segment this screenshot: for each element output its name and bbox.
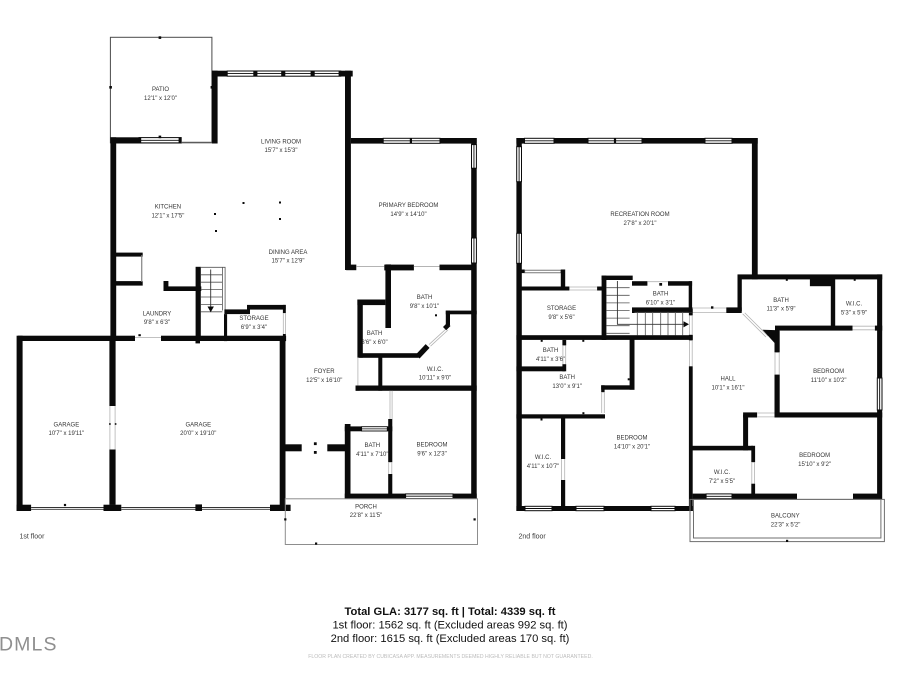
svg-text:BATH: BATH bbox=[653, 292, 669, 298]
svg-text:W.I.C.: W.I.C. bbox=[427, 367, 444, 373]
svg-text:13'0" x 9'1": 13'0" x 9'1" bbox=[552, 384, 582, 390]
svg-text:4'11" x 3'6": 4'11" x 3'6" bbox=[536, 357, 565, 363]
svg-text:PRIMARY BEDROOM: PRIMARY BEDROOM bbox=[379, 203, 439, 209]
svg-text:STORAGE: STORAGE bbox=[547, 306, 576, 312]
svg-text:BEDROOM: BEDROOM bbox=[416, 443, 447, 449]
svg-text:STORAGE: STORAGE bbox=[239, 316, 268, 322]
svg-text:9'8" x 5'6": 9'8" x 5'6" bbox=[548, 315, 574, 321]
svg-text:BATH: BATH bbox=[559, 375, 575, 381]
svg-text:11'10" x 10'2": 11'10" x 10'2" bbox=[811, 378, 847, 384]
svg-text:PATIO: PATIO bbox=[152, 87, 169, 93]
svg-text:10'7" x 19'11": 10'7" x 19'11" bbox=[48, 431, 84, 437]
svg-text:FOYER: FOYER bbox=[314, 369, 335, 375]
svg-text:22'8" x 11'5": 22'8" x 11'5" bbox=[350, 513, 382, 519]
svg-text:Total GLA: 3177 sq. ft | Total: Total GLA: 3177 sq. ft | Total: 4339 sq.… bbox=[345, 606, 556, 618]
svg-text:BEDROOM: BEDROOM bbox=[813, 369, 844, 375]
svg-text:DMLS: DMLS bbox=[0, 634, 58, 656]
svg-text:10'11" x 9'0": 10'11" x 9'0" bbox=[419, 376, 451, 382]
svg-text:6'9" x 3'4": 6'9" x 3'4" bbox=[241, 325, 267, 331]
svg-text:9'8" x 10'1": 9'8" x 10'1" bbox=[410, 304, 440, 310]
svg-text:9'6" x 12'3": 9'6" x 12'3" bbox=[417, 452, 447, 458]
svg-text:11'3" x 5'9": 11'3" x 5'9" bbox=[766, 307, 795, 313]
svg-text:14'9" x 14'10": 14'9" x 14'10" bbox=[390, 212, 426, 218]
svg-text:BALCONY: BALCONY bbox=[771, 514, 800, 520]
svg-text:HALL: HALL bbox=[720, 377, 736, 383]
svg-text:15'7" x 12'9": 15'7" x 12'9" bbox=[272, 259, 305, 265]
svg-text:GARAGE: GARAGE bbox=[185, 422, 211, 428]
svg-text:BEDROOM: BEDROOM bbox=[616, 436, 647, 442]
svg-text:12'5" x 16'10": 12'5" x 16'10" bbox=[306, 378, 342, 384]
svg-text:BATH: BATH bbox=[417, 295, 433, 301]
svg-text:BATH: BATH bbox=[543, 348, 559, 354]
svg-text:BATH: BATH bbox=[773, 298, 789, 304]
svg-text:RECREATION ROOM: RECREATION ROOM bbox=[610, 212, 669, 218]
svg-text:BATH: BATH bbox=[365, 443, 381, 449]
svg-text:GARAGE: GARAGE bbox=[54, 422, 80, 428]
svg-text:W.I.C.: W.I.C. bbox=[535, 455, 552, 461]
svg-text:27'8" x 20'1": 27'8" x 20'1" bbox=[624, 221, 657, 227]
svg-text:2nd floor: 1615 sq. ft (Exclud: 2nd floor: 1615 sq. ft (Excluded areas 1… bbox=[331, 633, 570, 645]
svg-text:LAUNDRY: LAUNDRY bbox=[143, 311, 172, 317]
svg-text:W.I.C.: W.I.C. bbox=[846, 302, 863, 308]
svg-text:12'1" x 17'5": 12'1" x 17'5" bbox=[151, 214, 184, 220]
svg-text:FLOOR PLAN CREATED BY CUBICASA: FLOOR PLAN CREATED BY CUBICASA APP. MEAS… bbox=[308, 654, 593, 660]
svg-text:20'0" x 19'10": 20'0" x 19'10" bbox=[180, 431, 216, 437]
svg-text:15'10" x 9'2": 15'10" x 9'2" bbox=[798, 462, 831, 468]
svg-text:9'8" x 6'3": 9'8" x 6'3" bbox=[144, 320, 170, 326]
svg-text:1st floor: 1562 sq. ft (Exclud: 1st floor: 1562 sq. ft (Excluded areas 9… bbox=[332, 620, 567, 632]
svg-text:1st floor: 1st floor bbox=[20, 534, 46, 541]
svg-text:3'6" x 6'0": 3'6" x 6'0" bbox=[361, 340, 387, 346]
svg-text:KITCHEN: KITCHEN bbox=[155, 205, 181, 211]
svg-text:10'1" x 16'1": 10'1" x 16'1" bbox=[712, 385, 745, 391]
svg-text:12'1" x 12'0": 12'1" x 12'0" bbox=[144, 96, 177, 102]
svg-text:7'2" x 5'5": 7'2" x 5'5" bbox=[709, 479, 735, 485]
svg-text:BEDROOM: BEDROOM bbox=[799, 453, 830, 459]
svg-text:15'7" x 15'3": 15'7" x 15'3" bbox=[265, 148, 298, 154]
svg-text:W.I.C.: W.I.C. bbox=[714, 470, 731, 476]
svg-text:4'11" x 10'7": 4'11" x 10'7" bbox=[527, 464, 559, 470]
svg-text:LIVING ROOM: LIVING ROOM bbox=[261, 139, 301, 145]
svg-text:6'10" x 3'1": 6'10" x 3'1" bbox=[646, 301, 676, 307]
svg-text:DINING AREA: DINING AREA bbox=[269, 250, 308, 256]
svg-text:4'11" x 7'10": 4'11" x 7'10" bbox=[356, 452, 388, 458]
svg-text:PORCH: PORCH bbox=[355, 504, 377, 510]
svg-text:5'3" x 5'9": 5'3" x 5'9" bbox=[841, 310, 867, 316]
svg-text:2nd floor: 2nd floor bbox=[519, 534, 547, 541]
svg-text:14'10" x 20'1": 14'10" x 20'1" bbox=[614, 445, 650, 451]
svg-text:22'3" x 5'2": 22'3" x 5'2" bbox=[771, 522, 801, 528]
svg-text:BATH: BATH bbox=[367, 331, 383, 337]
